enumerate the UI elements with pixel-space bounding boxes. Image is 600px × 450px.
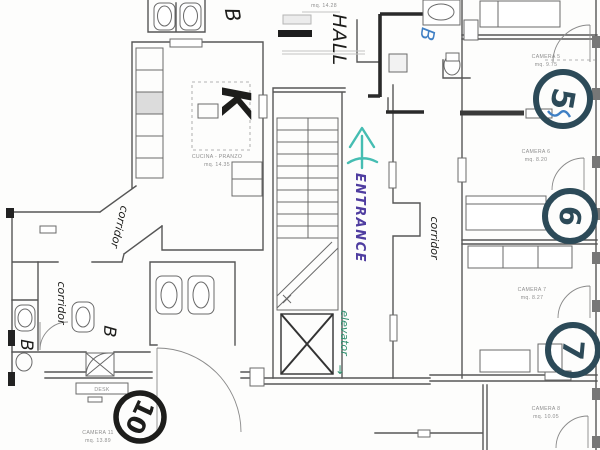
floor-plan-drawing: mq. 14.28 CUCINA - PRANZO mq. 14.35 CAME… <box>0 0 600 450</box>
entrance-annotation: ENTRANCE <box>352 173 367 263</box>
staircase <box>277 118 338 310</box>
wardrobe <box>468 246 572 268</box>
kitchen-k-annotation: K <box>212 87 258 121</box>
cabinet <box>389 54 407 72</box>
entrance-arrow-icon <box>348 128 377 168</box>
kitchen-area-label: mq. 14.35 <box>204 162 230 168</box>
camera5-name-label: CAMERA 5 <box>532 54 561 60</box>
camera11-name-label: CAMERA 11 <box>82 430 113 436</box>
wall-poche-left2 <box>8 372 15 386</box>
bed <box>480 350 530 372</box>
camera5-area-label: mq. 9.75 <box>535 62 558 68</box>
camera6-name-label: CAMERA 6 <box>522 149 551 155</box>
shower <box>86 353 114 376</box>
corridor-annotation-upper: corridor <box>108 204 131 250</box>
door-jamb <box>390 315 397 341</box>
elevator-arrow-annotation: ↓ <box>335 363 345 377</box>
elevator-shaft <box>281 314 333 374</box>
camera6-area-label: mq. 8.20 <box>525 157 548 163</box>
wall-poche-left3 <box>6 208 14 218</box>
door-jamb <box>259 95 267 118</box>
bathroom-b-annotation-top-left: B <box>220 6 246 24</box>
label-box <box>170 39 202 47</box>
desk-label: DESK <box>94 387 110 393</box>
hall-area-label: mq. 14.28 <box>311 3 337 9</box>
fixtures <box>15 0 572 437</box>
room-5-badge: 5 <box>536 72 590 126</box>
camera7-area-label: mq. 8.27 <box>521 295 544 301</box>
corridor-annotation-right: corridor <box>428 216 441 261</box>
svg-text:5: 5 <box>542 85 581 113</box>
floor-plan-scan: mq. 14.28 CUCINA - PRANZO mq. 14.35 CAME… <box>0 0 600 450</box>
bathroom-b-annotation-blue: B <box>415 26 439 43</box>
camera8-name-label: CAMERA 8 <box>532 406 561 412</box>
wall-poche-left1 <box>8 330 15 346</box>
handwritten-annotations: K HALL ENTRANCE elevator ↓ corridor corr… <box>16 6 570 377</box>
elevator-annotation: elevator <box>338 310 351 357</box>
camera7-name-label: CAMERA 7 <box>518 287 547 293</box>
svg-text:7: 7 <box>555 338 591 361</box>
bathroom-b-annotation-left: B <box>16 339 36 351</box>
sink <box>16 353 32 371</box>
wall-poche-hall <box>278 30 312 37</box>
svg-text:6: 6 <box>552 204 588 227</box>
corridor-annotation-lower-left: corridor <box>55 281 68 326</box>
label-box <box>40 226 56 233</box>
bathroom-b-annotation-mid: B <box>99 325 120 338</box>
camera11-area-label: mq. 13.89 <box>85 438 111 444</box>
bed <box>480 1 560 27</box>
hall-annotation: HALL <box>328 14 350 66</box>
wardrobe <box>464 20 478 40</box>
bed <box>466 196 546 230</box>
room-6-badge: 6 <box>545 191 595 241</box>
door-jamb <box>458 158 466 182</box>
kitchen-name-label: CUCINA - PRANZO <box>192 154 242 160</box>
camera8-area-label: mq. 10.05 <box>533 414 559 420</box>
door-jamb <box>389 162 396 188</box>
